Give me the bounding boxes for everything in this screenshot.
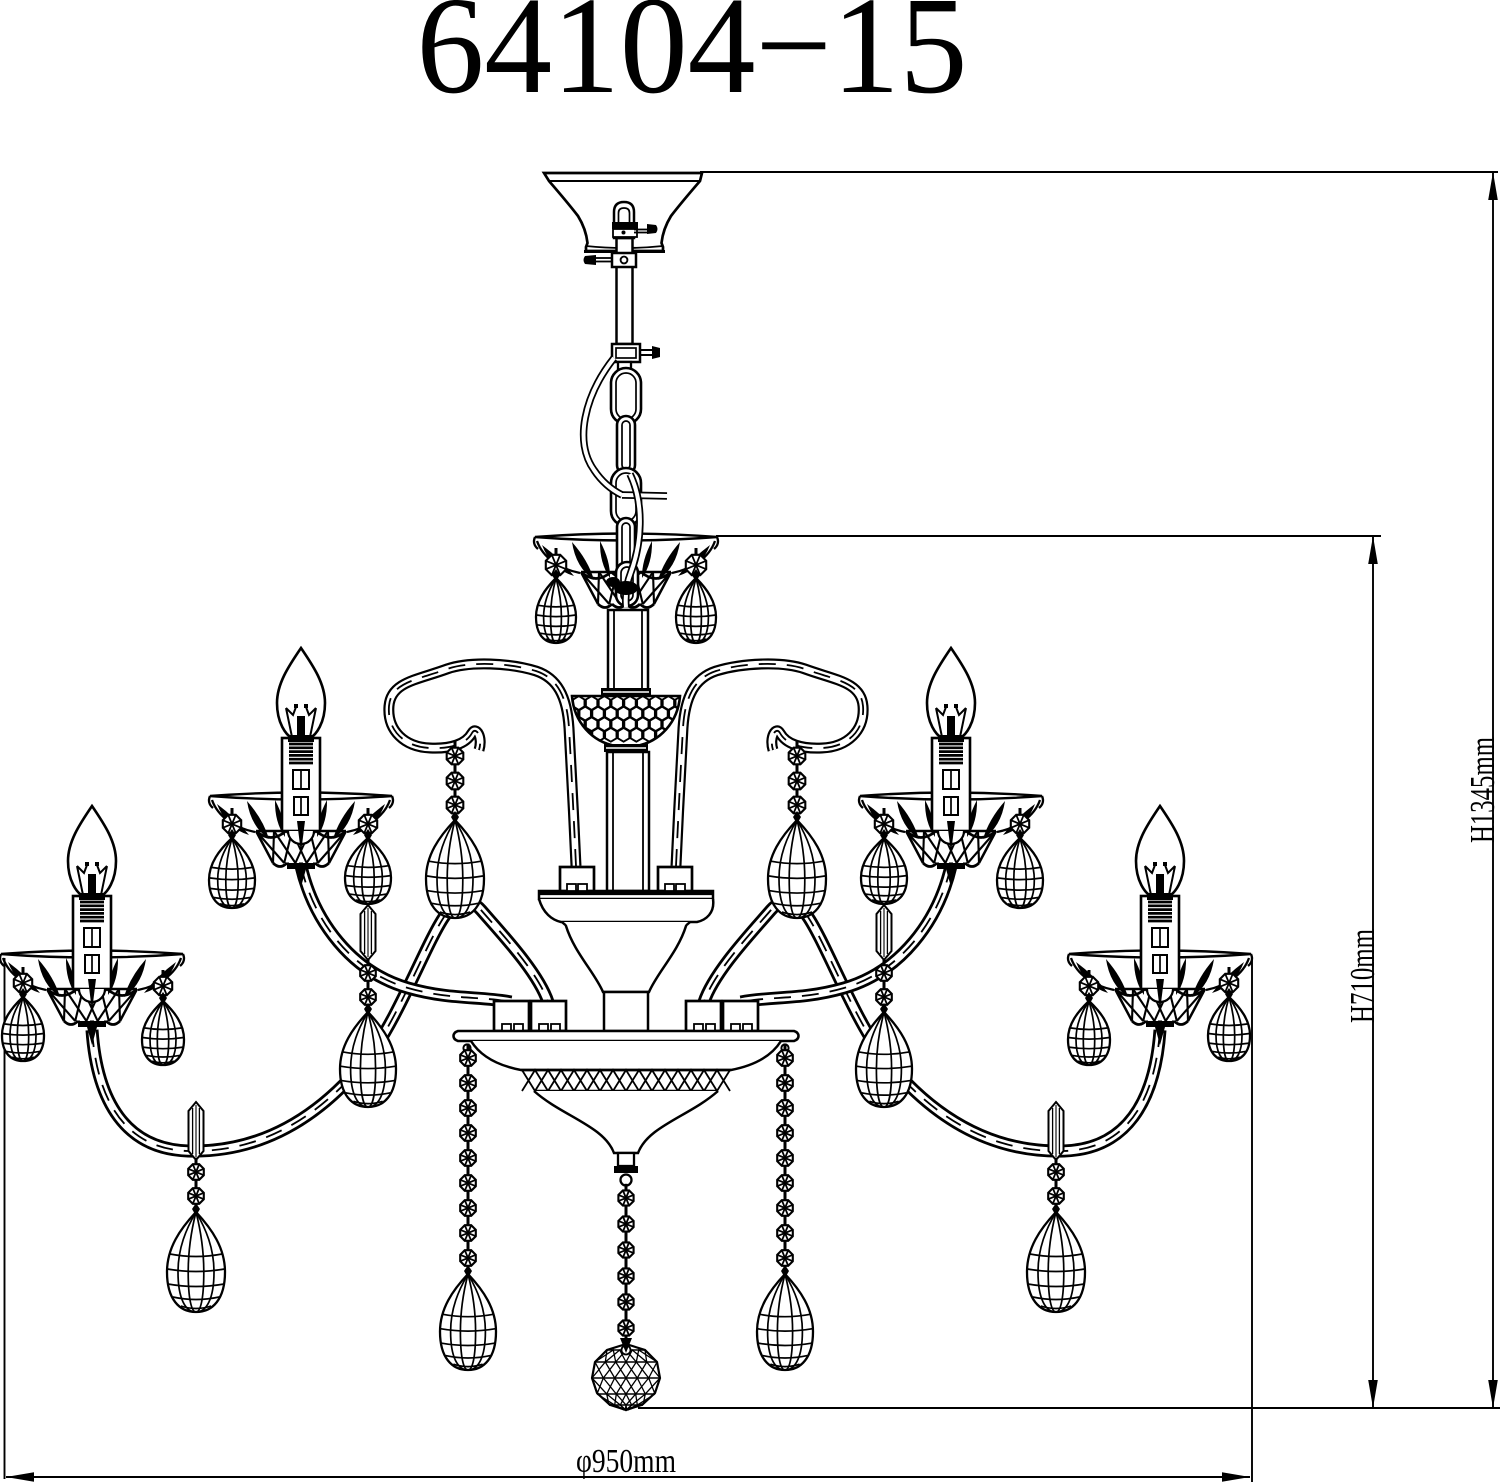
- svg-text:φ950mm: φ950mm: [576, 1443, 676, 1480]
- svg-text:H1345mm: H1345mm: [1463, 737, 1500, 843]
- svg-text:H710mm: H710mm: [1343, 929, 1382, 1023]
- svg-text:64104−15: 64104−15: [417, 0, 968, 123]
